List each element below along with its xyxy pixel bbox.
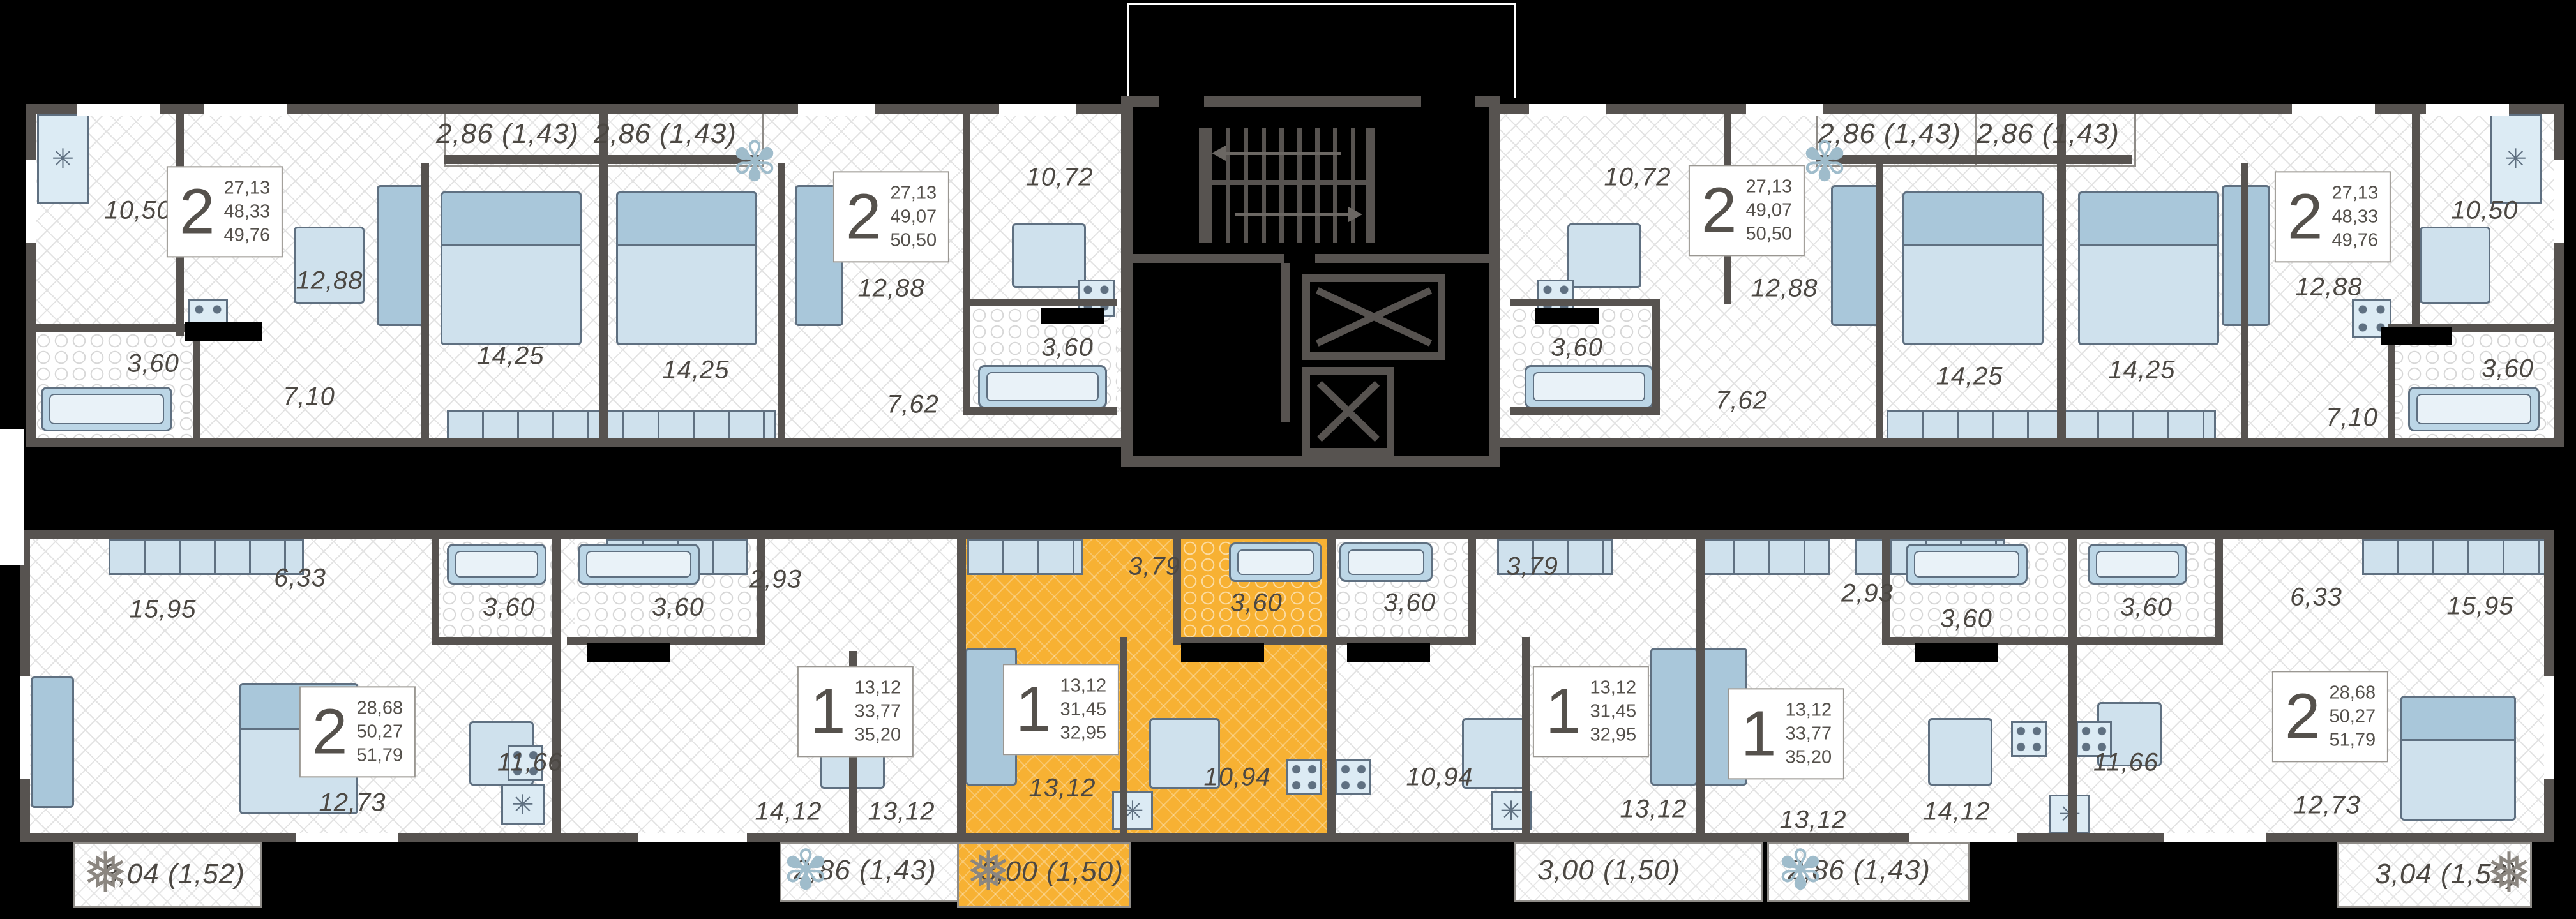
stair-direction-line [1235, 213, 1350, 216]
core-parapet [1127, 3, 1516, 98]
apartment-region-top-far-right[interactable] [2057, 104, 2564, 447]
balcony-area-label: 3,00 (1,50) [1537, 855, 1680, 886]
elevator[interactable] [1302, 367, 1394, 456]
apartment-region-bottom-center-highlighted[interactable] [957, 530, 1327, 909]
apartment-region-bottom-far-right[interactable] [2068, 530, 2554, 842]
wall [1121, 456, 1500, 467]
elevator[interactable] [1302, 274, 1445, 360]
snowflake-icon: ❅ [2486, 841, 2532, 905]
wall [1366, 128, 1375, 243]
apartment-region-bottom-right-1room[interactable] [1696, 530, 2068, 842]
floorplan: ✳ ✳ ✳ ✳ ✳ ✳ [0, 0, 2576, 919]
apartment-region-bottom-left-center[interactable] [552, 530, 957, 842]
apartment-region-top-left-center[interactable] [600, 104, 1117, 447]
stair-direction-line [1226, 152, 1341, 155]
stair-arrow-icon [1348, 207, 1362, 222]
apartment-region-bottom-right-center[interactable] [1327, 530, 1696, 842]
wall [1315, 254, 1489, 263]
stair-landing [1208, 180, 1366, 185]
apartment-region-bottom-far-left[interactable] [20, 530, 552, 842]
wall [1133, 254, 1284, 263]
wall [1121, 96, 1133, 467]
wall [1199, 128, 1208, 243]
wall [1281, 263, 1290, 422]
plant-icon: ✾ [783, 839, 829, 902]
wall [1489, 96, 1500, 467]
stairwell[interactable] [1208, 128, 1366, 243]
apartment-region-top-right-center[interactable] [1500, 104, 2057, 447]
stair-arrow-icon [1212, 146, 1226, 161]
snowflake-icon: ❅ [82, 841, 128, 905]
wall [1204, 96, 1421, 107]
plant-icon: ✾ [1777, 839, 1823, 902]
apartment-region-top-far-left[interactable] [26, 104, 600, 447]
